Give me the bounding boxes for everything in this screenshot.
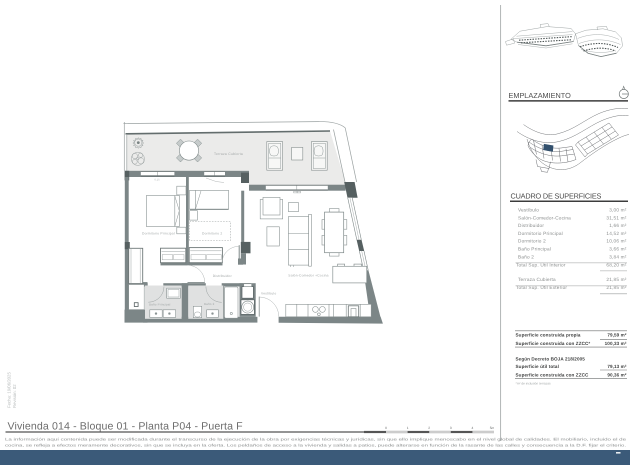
svg-text:4: 4: [472, 426, 474, 430]
svg-text:100,33 m²: 100,33 m²: [605, 341, 627, 346]
svg-text:Superficie construida propia: Superficie construida propia: [516, 333, 581, 338]
svg-text:Salón-Comedor +Cocina: Salón-Comedor +Cocina: [288, 273, 328, 277]
svg-text:*m² de inclusión terrazas: *m² de inclusión terrazas: [516, 381, 551, 385]
svg-text:1: 1: [407, 426, 409, 430]
svg-text:Total Sup. Útil Exterior: Total Sup. Útil Exterior: [516, 284, 567, 290]
svg-text:Distribuidor: Distribuidor: [213, 274, 233, 278]
svg-text:Dormitorio Principal: Dormitorio Principal: [142, 232, 175, 236]
svg-text:Salón-Comedor-Cocina: Salón-Comedor-Cocina: [518, 215, 571, 220]
svg-text:EMPLAZAMIENTO: EMPLAZAMIENTO: [509, 91, 572, 100]
svg-text:Baño 2: Baño 2: [518, 254, 534, 259]
svg-text:Superficie útil total: Superficie útil total: [516, 364, 559, 369]
svg-text:21,85 m²: 21,85 m²: [606, 277, 626, 282]
svg-text:90,36 m²: 90,36 m²: [607, 373, 627, 378]
svg-text:Baño 2: Baño 2: [204, 302, 215, 306]
svg-text:0.15: 0.15: [155, 179, 161, 182]
svg-text:31,51 m²: 31,51 m²: [606, 215, 626, 220]
svg-text:3,00 m²: 3,00 m²: [609, 207, 627, 212]
svg-text:Dormitorio Principal: Dormitorio Principal: [518, 231, 563, 236]
svg-text:Según Decreto BOJA 218/2005: Según Decreto BOJA 218/2005: [516, 356, 586, 361]
svg-text:Dormitorio 2: Dormitorio 2: [202, 232, 222, 236]
svg-text:Revisión: 02: Revisión: 02: [12, 384, 17, 408]
svg-text:Fecha: 19/06/2025: Fecha: 19/06/2025: [7, 372, 12, 408]
svg-text:Baño Principal: Baño Principal: [518, 247, 551, 252]
svg-text:3,66 m²: 3,66 m²: [609, 247, 627, 252]
svg-text:79,13 m²: 79,13 m²: [607, 364, 627, 369]
svg-text:Baño Principal: Baño Principal: [149, 302, 171, 306]
svg-text:Superficie construida con ZZCC: Superficie construida con ZZCC: [516, 373, 590, 378]
svg-text:Vestíbulo: Vestíbulo: [261, 291, 276, 295]
svg-text:CUADRO DE SUPERFICIES: CUADRO DE SUPERFICIES: [511, 192, 602, 201]
svg-text:La información aquí contenida: La información aquí contenida puede ser …: [5, 438, 626, 442]
svg-text:3,84 m²: 3,84 m²: [609, 254, 627, 259]
svg-text:5m: 5m: [490, 426, 495, 430]
svg-text:Total Sup. Útil Interior: Total Sup. Útil Interior: [516, 261, 566, 267]
svg-text:Distribuidor: Distribuidor: [518, 223, 544, 228]
svg-text:10,06 m²: 10,06 m²: [606, 239, 626, 244]
svg-text:14,52 m²: 14,52 m²: [606, 231, 626, 236]
svg-text:Vivienda 014 - Bloque 01 - Pla: Vivienda 014 - Bloque 01 - Planta P04 - …: [8, 420, 244, 432]
svg-text:3: 3: [450, 426, 452, 430]
svg-text:Superficie construida con ZZCC: Superficie construida con ZZCC*: [516, 341, 591, 346]
svg-text:79,59 m²: 79,59 m²: [607, 333, 627, 338]
svg-text:1,66 m²: 1,66 m²: [609, 223, 627, 228]
svg-text:2: 2: [428, 426, 430, 430]
svg-text:Terraza Cubierta: Terraza Cubierta: [214, 152, 243, 156]
svg-text:Dormitorio 2: Dormitorio 2: [518, 239, 546, 244]
svg-text:Vestíbulo: Vestíbulo: [518, 207, 539, 212]
svg-text:Terraza Cubierta: Terraza Cubierta: [518, 277, 556, 282]
svg-text:0: 0: [385, 426, 387, 430]
svg-text:cocina, se refleja a efectos m: cocina, se refleja a efectos meramente d…: [5, 443, 626, 447]
